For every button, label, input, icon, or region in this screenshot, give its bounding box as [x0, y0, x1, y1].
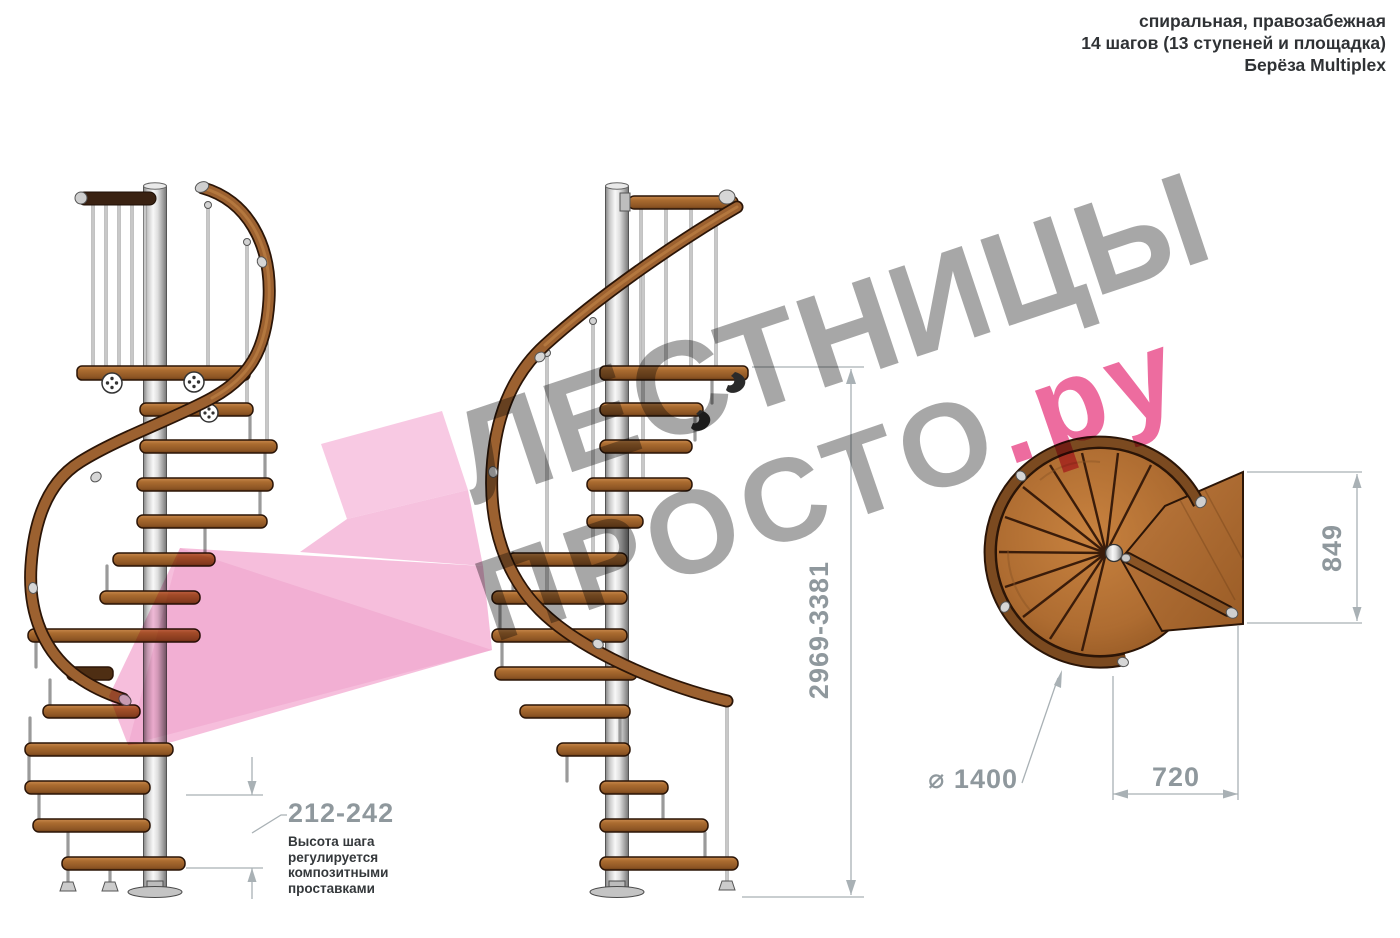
dim-landing-depth: 849 [1247, 472, 1362, 623]
title-line-type: спиральная, правозабежная [1081, 10, 1386, 32]
platform-handrail [620, 190, 738, 211]
step-height-note: Высота шага регулируется композитными пр… [288, 834, 410, 896]
title-line-material: Берёза Multiplex [1081, 54, 1386, 76]
drawing-canvas: 2969-3381 212-242 ⌀ 1400 720 [0, 0, 1400, 938]
landing-width-label: 720 [1152, 762, 1200, 792]
total-height-label: 2969-3381 [804, 561, 834, 699]
platform-handrail [75, 192, 156, 205]
title-line-steps: 14 шагов (13 ступеней и площадка) [1081, 32, 1386, 54]
step-height-label: 212-242 [288, 798, 394, 828]
diameter-label: ⌀ 1400 [928, 764, 1018, 794]
landing-depth-label: 849 [1317, 524, 1347, 572]
dim-diameter: ⌀ 1400 [928, 670, 1062, 794]
title-block: спиральная, правозабежная 14 шагов (13 с… [1081, 10, 1386, 76]
dim-landing-width: 720 [1113, 626, 1238, 800]
staircase-drawing: 2969-3381 212-242 ⌀ 1400 720 [0, 0, 1400, 938]
side-view-left-staircase [25, 180, 277, 898]
